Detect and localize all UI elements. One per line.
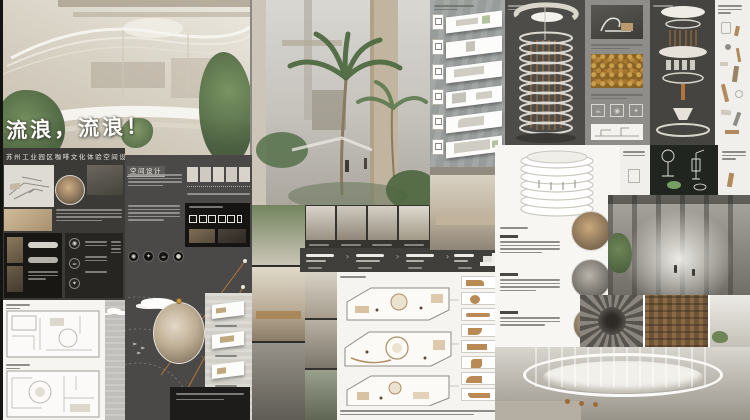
process-step-card xyxy=(432,64,444,80)
text-line xyxy=(591,48,630,50)
axon-chip xyxy=(212,361,244,379)
render-strip xyxy=(337,206,366,240)
caption-block xyxy=(340,408,498,417)
slogan-panel xyxy=(185,203,250,247)
text-line xyxy=(6,308,20,310)
board-header xyxy=(653,3,673,9)
text-line xyxy=(718,9,742,11)
render-circular-bar xyxy=(495,347,750,420)
text-line xyxy=(508,5,534,7)
text-line xyxy=(85,271,107,273)
text-line xyxy=(28,275,58,277)
slogan-outline-text xyxy=(189,215,247,225)
text-line xyxy=(56,220,102,222)
part-shape xyxy=(736,48,741,62)
detail-chip xyxy=(461,388,497,401)
text-line xyxy=(128,216,180,218)
cylinder-ring-render xyxy=(505,147,609,219)
text-line xyxy=(128,212,180,214)
render-thumb xyxy=(305,272,337,318)
label-pill xyxy=(28,242,58,248)
render-thumb-shelves xyxy=(645,295,708,347)
render-thumb-white-interior xyxy=(710,295,750,347)
text-line xyxy=(85,260,107,262)
text-line xyxy=(128,185,163,187)
text-line xyxy=(111,248,121,250)
detail-chip xyxy=(461,324,497,337)
text-line xyxy=(500,279,560,281)
massing-plate xyxy=(446,111,502,134)
photo-circle-inset xyxy=(571,211,611,251)
icon-diagram-row: ☕ ◉ ✦ xyxy=(591,104,643,119)
text-line xyxy=(500,321,560,323)
part-shape xyxy=(735,90,743,98)
text-block xyxy=(591,42,643,51)
text-block xyxy=(187,191,250,197)
text-line xyxy=(591,94,643,96)
tower-exploded-axon xyxy=(505,0,585,145)
floor-plan-1f xyxy=(6,310,100,358)
text-line xyxy=(111,241,121,243)
text-line xyxy=(6,364,30,366)
render-strip xyxy=(306,206,335,240)
text-line xyxy=(653,5,673,7)
text-line xyxy=(500,324,545,326)
text-line xyxy=(722,155,746,157)
render-thumb-kitchen xyxy=(252,267,305,341)
label-pill xyxy=(28,257,58,263)
render-atrium-courtyard xyxy=(252,0,430,205)
process-step-card xyxy=(432,14,444,30)
ceiling-shadow xyxy=(608,195,750,204)
person-figure xyxy=(674,265,677,273)
text-line xyxy=(128,181,182,183)
render-thumb-greenery xyxy=(252,205,305,265)
timeline-sketch-row xyxy=(187,167,250,199)
text-line xyxy=(215,325,237,327)
sketch-thumb xyxy=(213,167,224,182)
atrium-scene xyxy=(252,0,430,205)
text-line xyxy=(111,252,121,254)
progress-group xyxy=(356,254,394,262)
sketch-thumb xyxy=(239,167,250,182)
text-line xyxy=(176,399,224,401)
text-line xyxy=(458,267,472,269)
part-shape xyxy=(720,62,728,66)
part-shape xyxy=(721,109,731,115)
text-line xyxy=(176,393,244,395)
detail-chips-rail xyxy=(461,276,499,406)
text-line xyxy=(128,174,182,176)
coffee-icon: ☕ xyxy=(591,104,605,117)
text-section xyxy=(500,311,560,328)
part-shape xyxy=(628,169,640,183)
chevron-icon: › xyxy=(346,252,349,261)
progress-group xyxy=(454,254,478,262)
text-block xyxy=(111,239,121,293)
plant-right xyxy=(199,52,250,163)
text-line xyxy=(128,209,180,211)
machine-exploded-axon xyxy=(650,0,715,145)
coffee-icon: ☕ xyxy=(69,258,80,269)
text-line xyxy=(56,209,122,211)
target-icon: ◉ xyxy=(610,104,624,117)
text-line xyxy=(372,244,392,246)
process-step-card xyxy=(432,89,444,105)
detail-chip xyxy=(461,292,497,305)
text-line xyxy=(6,368,20,370)
process-step-card xyxy=(432,139,444,155)
process-step-card xyxy=(432,114,444,130)
text-line xyxy=(85,245,107,247)
text-block xyxy=(623,149,645,158)
text-line xyxy=(500,227,528,229)
dark-sketch-panel xyxy=(170,387,250,420)
part-shape xyxy=(734,26,740,37)
plant-blob xyxy=(608,233,632,273)
renders-row-tower xyxy=(580,295,750,347)
pushpin-icon xyxy=(176,298,182,304)
renders-column-mid xyxy=(305,272,337,420)
material-swatch-coffee xyxy=(591,54,643,88)
massing-plate xyxy=(446,11,502,34)
text-block xyxy=(591,92,643,101)
panel-material-notes: ☕ ◉ ✦ xyxy=(585,0,650,145)
text-line xyxy=(56,213,122,215)
text-line xyxy=(500,248,560,250)
photo-thumb xyxy=(218,229,246,243)
photo-thumb xyxy=(7,237,23,263)
axon-sketch-thumb xyxy=(4,165,54,207)
render-cafe-counter xyxy=(430,167,505,250)
strip-massing-process xyxy=(430,0,505,250)
part-shape xyxy=(732,66,739,83)
text-line xyxy=(6,304,30,306)
massing-plate xyxy=(446,61,502,84)
text-line xyxy=(85,241,107,243)
text-line xyxy=(500,317,560,319)
text-line xyxy=(404,244,424,246)
copper-fixture xyxy=(593,402,598,407)
board-axon-plans xyxy=(337,272,502,420)
text-line xyxy=(189,206,223,208)
photo-thumb-dark xyxy=(87,165,123,195)
render-strips-row xyxy=(305,205,430,248)
text-line xyxy=(434,9,458,11)
text-line xyxy=(623,155,645,157)
diagram-white-box xyxy=(591,124,643,140)
progress-group xyxy=(306,254,344,262)
text-line xyxy=(340,414,474,416)
part-shape xyxy=(721,22,731,34)
text-line xyxy=(128,178,182,180)
render-industrial-hall xyxy=(608,195,750,298)
model-photo-thumb xyxy=(4,209,52,231)
render-strip xyxy=(399,206,429,240)
photo-circle-inset xyxy=(55,175,85,205)
text-block xyxy=(128,172,182,198)
text-line xyxy=(308,267,322,269)
board-left-analysis: ◉ ☕ ✦ xyxy=(3,163,125,300)
poster-title: 流浪，流浪！ xyxy=(6,109,177,145)
panel-floor-plans xyxy=(3,300,105,420)
detail-chip xyxy=(461,372,497,385)
axon-chip xyxy=(212,331,244,349)
part-shape xyxy=(727,173,734,188)
text-line xyxy=(408,267,422,269)
text-section xyxy=(500,235,560,255)
render-strip xyxy=(368,206,397,240)
text-line xyxy=(500,241,560,243)
photo-circle-inset xyxy=(571,259,611,299)
part-shape xyxy=(721,84,729,102)
render-thumb xyxy=(305,320,337,368)
progress-group xyxy=(406,254,444,262)
sketch-thumb xyxy=(200,167,211,182)
text-line xyxy=(340,276,366,278)
text-line xyxy=(215,355,237,357)
sparkle-icon: ✦ xyxy=(629,104,643,117)
part-shape xyxy=(725,130,739,134)
text-line xyxy=(718,12,731,14)
model-photo xyxy=(591,5,643,39)
strip-parts-list xyxy=(715,0,750,145)
text-line xyxy=(500,283,560,285)
renders-column-left xyxy=(252,205,305,420)
text-line xyxy=(85,256,107,258)
detail-chip xyxy=(461,276,497,289)
axon-chip xyxy=(212,301,244,319)
text-section xyxy=(500,273,560,293)
massing-plate xyxy=(446,136,502,159)
text-block xyxy=(85,239,107,293)
text-line xyxy=(500,245,560,247)
text-line xyxy=(434,5,474,7)
glass-screen xyxy=(535,347,715,387)
design-board-collage: 流浪，流浪！ 苏州工业园区咖啡文化体验空间设计 ◉ ☕ ✦ xyxy=(0,0,750,420)
board-machine-exploded xyxy=(650,0,715,145)
chevron-icon: › xyxy=(396,252,399,261)
text-line xyxy=(722,158,736,160)
text-block xyxy=(28,269,58,293)
text-line xyxy=(591,44,643,46)
text-line xyxy=(340,410,498,412)
text-line xyxy=(591,98,627,100)
copper-fixture xyxy=(579,401,584,406)
board-header xyxy=(508,3,534,12)
cloud-icon xyxy=(107,308,121,314)
text-line xyxy=(508,9,524,11)
text-line xyxy=(128,205,180,207)
panel-program-left xyxy=(4,233,62,298)
poster-subtitle-bar: 苏州工业园区咖啡文化体验空间设计 xyxy=(3,148,125,163)
panel-icons-right: ◉ ☕ ✦ xyxy=(65,233,123,298)
render-circle-inset xyxy=(153,302,205,364)
text-line xyxy=(358,267,372,269)
text-line xyxy=(28,278,46,280)
detail-chip xyxy=(461,340,497,353)
text-line xyxy=(111,245,121,247)
text-block xyxy=(56,207,122,231)
panel-coffee-gear-sketch xyxy=(650,145,718,195)
board-space-design: 空间设计 ◉ ✦ ☕ ● xyxy=(125,155,252,420)
axon-cutaway-plans xyxy=(337,280,459,406)
text-line xyxy=(718,5,742,7)
render-thumb-oculus xyxy=(580,295,643,347)
massing-plate xyxy=(446,36,502,59)
process-step-card xyxy=(432,39,444,55)
process-header xyxy=(434,3,474,12)
sparkle-icon: ✦ xyxy=(69,278,80,289)
floor-plan-2f xyxy=(6,370,100,418)
copper-fixture xyxy=(565,399,570,404)
sketch-thumb xyxy=(226,167,237,182)
text-line xyxy=(500,252,542,254)
render-thumb-interior xyxy=(252,343,305,420)
text-block xyxy=(128,203,180,243)
text-line xyxy=(500,290,536,292)
text-line xyxy=(309,244,329,246)
board-tower-axon xyxy=(505,0,585,145)
text-line xyxy=(341,244,361,246)
text-line xyxy=(187,193,250,195)
detail-chip xyxy=(461,308,497,321)
text-line xyxy=(128,219,164,221)
text-line xyxy=(623,151,645,153)
parts-header xyxy=(718,3,742,16)
render-thumb xyxy=(305,370,337,420)
photo-thumb xyxy=(189,229,215,243)
part-shape xyxy=(733,112,742,127)
sketch-thumb xyxy=(187,167,198,182)
timeline-bar: › › › xyxy=(300,248,502,272)
text-line xyxy=(56,216,122,218)
text-line xyxy=(28,271,58,273)
text-block xyxy=(722,149,746,162)
text-line xyxy=(500,286,560,288)
row-equipment-diagrams xyxy=(620,145,750,195)
text-line xyxy=(722,151,746,153)
massing-plate xyxy=(446,86,502,109)
target-icon: ◉ xyxy=(69,238,80,249)
poster-subtitle: 苏州工业园区咖啡文化体验空间设计 xyxy=(6,151,125,161)
chevron-icon: › xyxy=(446,252,449,261)
detail-chip xyxy=(461,356,497,369)
person-figure xyxy=(692,269,695,276)
part-shape xyxy=(725,44,731,50)
photo-thumb xyxy=(7,266,23,292)
wall-texture-strip xyxy=(105,300,125,420)
